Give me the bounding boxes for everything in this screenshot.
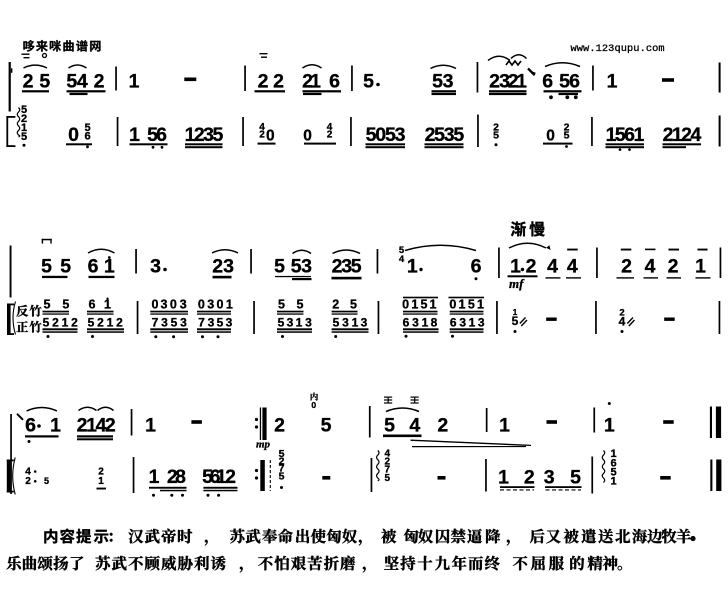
svg-text:2: 2 [23, 71, 34, 93]
svg-text:2: 2 [105, 415, 116, 437]
svg-text:1: 1 [129, 124, 140, 146]
svg-text:0: 0 [266, 128, 275, 145]
svg-text:3: 3 [443, 71, 454, 93]
svg-text:5: 5 [321, 415, 332, 437]
svg-text:1: 1 [107, 316, 114, 330]
svg-text:5: 5 [421, 298, 428, 312]
svg-text:1: 1 [477, 298, 484, 312]
svg-text:4: 4 [645, 256, 656, 278]
svg-text:2: 2 [97, 316, 104, 330]
svg-text:1: 1 [607, 71, 618, 93]
svg-text:5: 5 [41, 256, 52, 278]
svg-text:0: 0 [546, 128, 555, 145]
svg-text:0: 0 [198, 298, 205, 312]
svg-text:1: 1 [604, 415, 615, 437]
svg-text:6: 6 [542, 71, 553, 93]
svg-text:6: 6 [450, 316, 457, 330]
svg-text:2: 2 [258, 71, 269, 93]
svg-text:2: 2 [526, 256, 537, 278]
svg-text:4: 4 [399, 254, 405, 265]
svg-text:6: 6 [88, 256, 99, 278]
svg-text:1: 1 [129, 71, 140, 93]
svg-text:5: 5 [44, 298, 51, 312]
svg-text:1: 1 [226, 298, 233, 312]
svg-text:1: 1 [407, 256, 418, 278]
svg-text:3: 3 [287, 316, 294, 330]
svg-text:2: 2 [274, 415, 285, 437]
svg-text:5: 5 [279, 470, 285, 482]
svg-text:3: 3 [301, 256, 312, 278]
svg-text:3: 3 [226, 316, 233, 330]
svg-text:0: 0 [402, 298, 409, 312]
svg-text:5: 5 [44, 476, 49, 486]
svg-text:mf: mf [509, 276, 525, 291]
svg-text:1: 1 [469, 316, 476, 330]
svg-text:3: 3 [150, 256, 161, 278]
svg-text:1: 1 [510, 256, 521, 278]
svg-text:3: 3 [412, 316, 419, 330]
svg-text:1: 1 [411, 298, 418, 312]
svg-text:2: 2 [116, 316, 123, 330]
svg-text:5: 5 [493, 130, 499, 142]
svg-text:5: 5 [351, 256, 362, 278]
svg-text:5: 5 [468, 298, 475, 312]
svg-text:6: 6 [569, 71, 580, 93]
svg-text:3: 3 [342, 316, 349, 330]
svg-text:5: 5 [570, 466, 581, 488]
svg-text:1: 1 [50, 415, 61, 437]
svg-text:3: 3 [395, 124, 406, 146]
svg-text:4: 4 [547, 256, 558, 278]
svg-text:2: 2 [524, 466, 535, 488]
svg-text:5: 5 [212, 124, 223, 146]
svg-text:6: 6 [25, 415, 36, 437]
svg-text:4: 4 [567, 256, 578, 278]
svg-text:3: 3 [361, 316, 368, 330]
svg-text:1: 1 [499, 415, 510, 437]
svg-text:mp: mp [256, 439, 271, 451]
svg-text:5: 5 [171, 316, 178, 330]
svg-text:3: 3 [223, 256, 234, 278]
svg-text:5: 5 [278, 298, 285, 312]
svg-text:3: 3 [161, 316, 168, 330]
svg-text:7: 7 [152, 316, 159, 330]
svg-text:0: 0 [152, 298, 159, 312]
svg-text:2: 2 [94, 71, 105, 93]
svg-text:4: 4 [690, 124, 701, 146]
svg-text:3: 3 [208, 316, 215, 330]
svg-text:4: 4 [409, 415, 420, 437]
svg-text:2: 2 [259, 129, 265, 140]
svg-text:1: 1 [422, 316, 429, 330]
svg-text:6: 6 [329, 71, 340, 93]
svg-text:6: 6 [89, 298, 96, 312]
svg-text:5: 5 [564, 130, 570, 142]
svg-text:1: 1 [695, 256, 706, 278]
svg-text:5: 5 [62, 298, 69, 312]
svg-text:5: 5 [432, 71, 443, 93]
svg-text:1: 1 [98, 476, 104, 487]
svg-text:2: 2 [621, 256, 632, 278]
svg-text:4: 4 [77, 71, 88, 93]
svg-text:7: 7 [198, 316, 205, 330]
svg-text:5: 5 [88, 316, 95, 330]
svg-text:1: 1 [610, 476, 616, 488]
svg-text:3: 3 [478, 316, 485, 330]
svg-text:2: 2 [52, 316, 59, 330]
svg-text:3: 3 [180, 316, 187, 330]
svg-text:4: 4 [619, 315, 626, 329]
svg-text:5: 5 [60, 256, 71, 278]
svg-text:1: 1 [498, 466, 509, 488]
svg-text:1: 1 [516, 71, 527, 93]
svg-text:1: 1 [430, 298, 437, 312]
svg-text:5: 5 [278, 316, 285, 330]
svg-text:5: 5 [333, 316, 340, 330]
svg-text:8: 8 [175, 466, 186, 488]
svg-text:1: 1 [62, 316, 69, 330]
svg-text:3: 3 [305, 316, 312, 330]
svg-text:2: 2 [212, 256, 223, 278]
svg-text:5: 5 [350, 298, 357, 312]
svg-text:5: 5 [43, 316, 50, 330]
svg-text:3: 3 [180, 298, 187, 312]
svg-text:2: 2 [668, 256, 679, 278]
svg-text:3: 3 [207, 298, 214, 312]
svg-text:5: 5 [384, 415, 395, 437]
svg-text:5: 5 [66, 71, 77, 93]
svg-text:5: 5 [217, 316, 224, 330]
svg-text:2: 2 [327, 129, 333, 140]
svg-text:6: 6 [403, 316, 410, 330]
svg-text:2: 2 [273, 71, 284, 93]
svg-text:www.123qupu.com: www.123qupu.com [571, 43, 665, 55]
svg-text:1: 1 [633, 124, 644, 146]
svg-text:2: 2 [332, 298, 339, 312]
svg-text:0: 0 [303, 128, 312, 145]
svg-text:0: 0 [170, 298, 177, 312]
svg-text:3: 3 [161, 298, 168, 312]
svg-text:5: 5 [39, 71, 50, 93]
svg-text:3: 3 [544, 466, 555, 488]
svg-text:8: 8 [431, 316, 438, 330]
svg-text:6: 6 [156, 124, 167, 146]
svg-text:3: 3 [459, 316, 466, 330]
svg-text:2: 2 [437, 415, 448, 437]
svg-text:5: 5 [363, 71, 374, 93]
svg-text:0: 0 [68, 124, 79, 146]
svg-text:5: 5 [453, 124, 464, 146]
svg-text:2: 2 [25, 476, 31, 487]
svg-text:5: 5 [512, 314, 519, 328]
svg-text:0: 0 [449, 298, 456, 312]
svg-text:1: 1 [352, 316, 359, 330]
svg-text:0: 0 [311, 400, 316, 410]
svg-text:1: 1 [149, 466, 160, 488]
svg-text:5: 5 [297, 298, 304, 312]
svg-text:1: 1 [296, 316, 303, 330]
svg-text:6: 6 [471, 256, 482, 278]
svg-text:1: 1 [145, 415, 156, 437]
svg-text:5: 5 [385, 473, 391, 484]
svg-text:6: 6 [84, 130, 90, 142]
svg-text:2: 2 [71, 316, 78, 330]
svg-text:0: 0 [217, 298, 224, 312]
svg-text:2: 2 [225, 466, 236, 488]
svg-text:1: 1 [310, 71, 321, 93]
svg-text:5: 5 [21, 131, 27, 143]
svg-text:1: 1 [459, 298, 466, 312]
svg-text:5: 5 [274, 256, 285, 278]
